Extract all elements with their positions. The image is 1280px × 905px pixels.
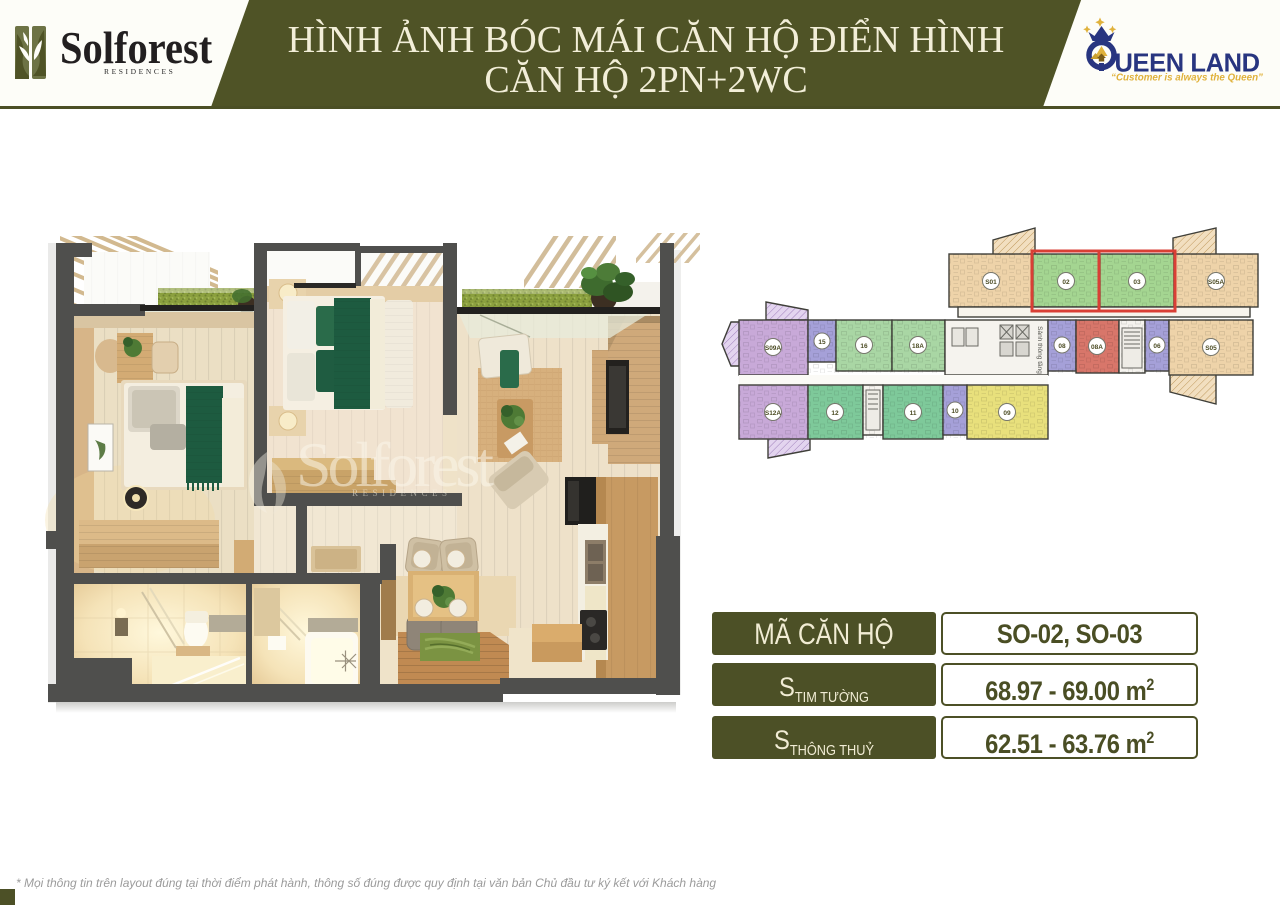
svg-text:08: 08 [1058, 343, 1066, 350]
svg-text:12: 12 [831, 410, 839, 417]
svg-text:02: 02 [1062, 279, 1070, 286]
svg-text:09: 09 [1003, 410, 1011, 417]
svg-text:08A: 08A [1091, 344, 1103, 351]
svg-text:18A: 18A [912, 343, 924, 350]
svg-text:15: 15 [818, 339, 826, 346]
svg-text:10: 10 [951, 408, 959, 415]
svg-text:S05A: S05A [1208, 279, 1225, 286]
svg-text:11: 11 [910, 410, 917, 417]
svg-text:06: 06 [1153, 343, 1161, 350]
svg-text:S12A: S12A [765, 410, 782, 417]
svg-text:S09A: S09A [765, 345, 782, 352]
svg-text:03: 03 [1133, 279, 1141, 286]
svg-text:S05: S05 [1205, 345, 1217, 352]
svg-text:16: 16 [860, 343, 868, 350]
svg-text:S01: S01 [985, 279, 997, 286]
svg-text:Sảnh thông tầng: Sảnh thông tầng [1036, 326, 1045, 374]
